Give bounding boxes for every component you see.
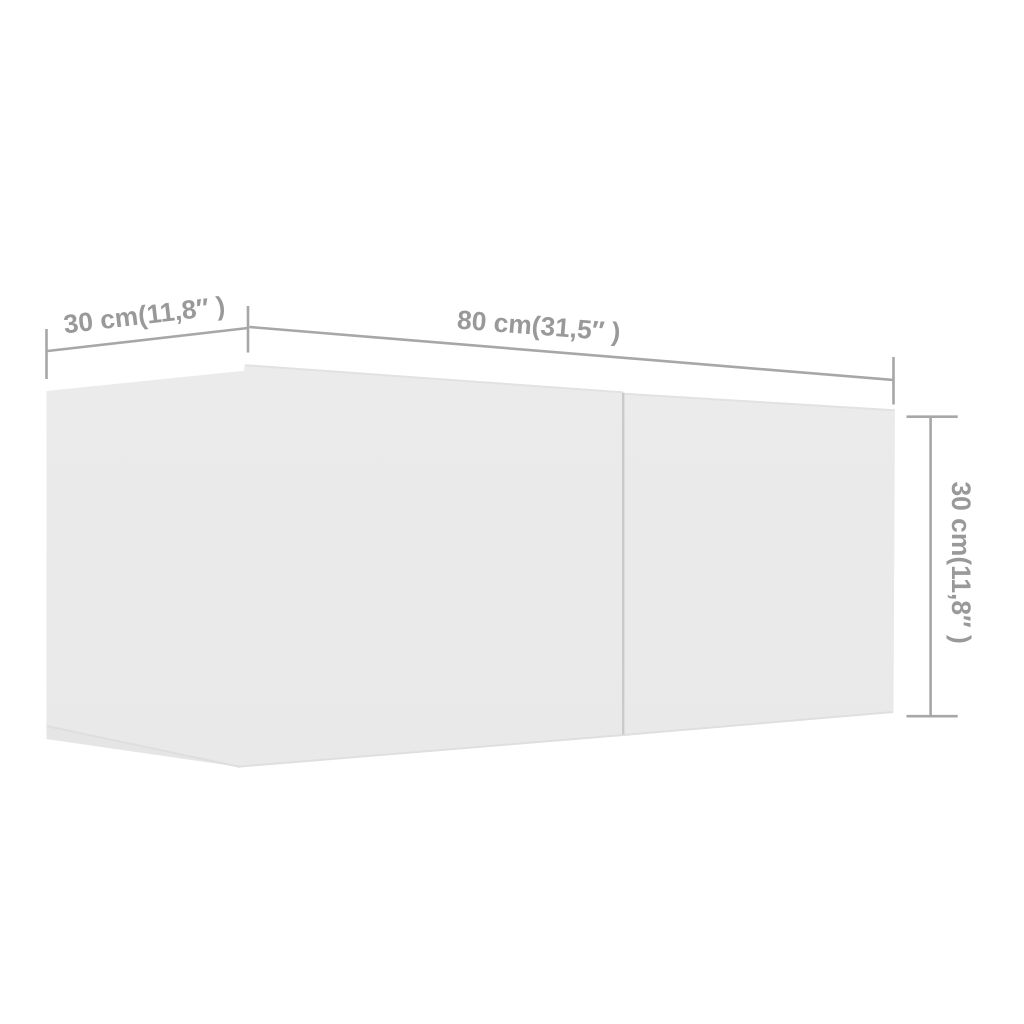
svg-text:80 cm(31,5″ ): 80 cm(31,5″ ) xyxy=(456,305,622,347)
svg-text:30 cm(11,8″ ): 30 cm(11,8″ ) xyxy=(946,482,976,644)
